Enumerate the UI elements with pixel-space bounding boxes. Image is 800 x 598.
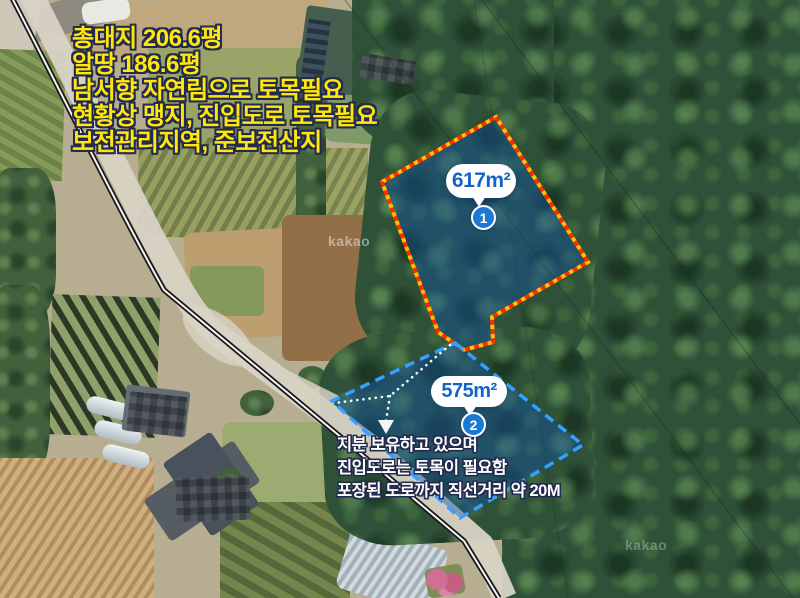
top-note-line: 현황상 맹지, 진입도로 토목필요 bbox=[72, 104, 377, 130]
bottom-note-line: 포장된 도로까지 직선거리 약 20M bbox=[337, 480, 560, 503]
area-pill-1: 617m² bbox=[446, 164, 516, 198]
area-label-1: 617m² bbox=[452, 169, 510, 193]
badge-number-2: 2 bbox=[470, 417, 478, 433]
bottom-note-line: 진입도로는 토목이 필요함 bbox=[337, 457, 507, 480]
top-note-line: 남서향 자연림으로 토목필요 bbox=[72, 78, 343, 104]
bottom-note-line: 지분 보유하고 있으며 bbox=[337, 434, 477, 457]
top-note-line: 보전관리지역, 준보전산지 bbox=[72, 130, 322, 156]
power-lines bbox=[345, 0, 800, 598]
parcel-badge-2: 2 bbox=[461, 412, 486, 437]
badge-number-1: 1 bbox=[480, 210, 488, 226]
area-pill-2: 575m² bbox=[431, 376, 507, 407]
top-note-line: 알땅 186.6평 bbox=[72, 52, 200, 78]
parcel-badge-1: 1 bbox=[471, 205, 496, 230]
parcel-1-overlay bbox=[382, 117, 588, 350]
top-note-line: 총대지 206.6평 bbox=[72, 26, 222, 52]
satellite-map: kakao kakao bbox=[0, 0, 800, 598]
parcel-1-fill bbox=[382, 117, 588, 350]
area-label-2: 575m² bbox=[441, 380, 496, 403]
